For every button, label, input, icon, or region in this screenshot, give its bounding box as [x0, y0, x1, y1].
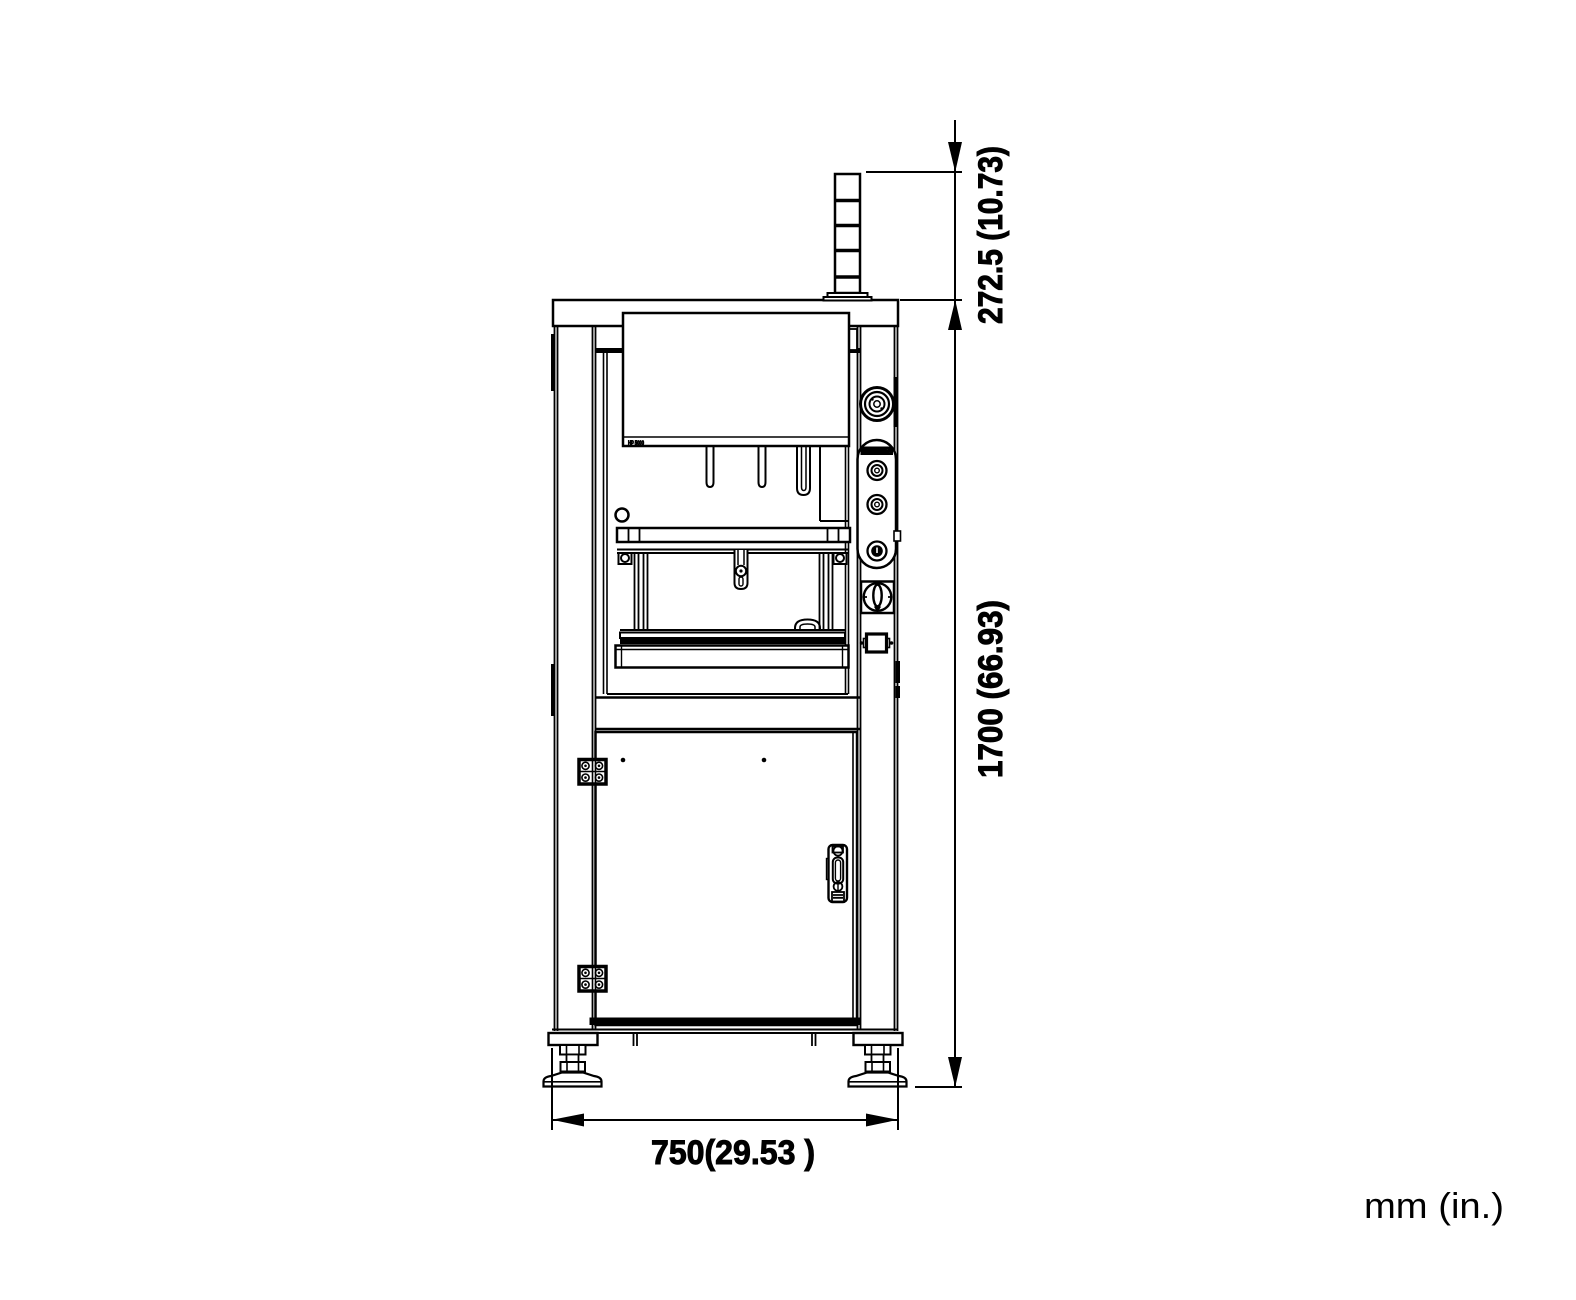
press-head-model-label: HP 5000 — [628, 441, 644, 447]
emergency-stop-button — [861, 388, 894, 421]
central-tool-rod — [735, 550, 748, 589]
main-power-switch — [861, 582, 894, 614]
right-wall-tab — [896, 686, 901, 698]
door-hole — [762, 758, 767, 763]
lower-cabinet — [579, 732, 861, 1025]
door-hole — [621, 758, 626, 763]
door-handle — [827, 845, 848, 902]
cabinet-door — [596, 732, 858, 1025]
caution-label-text: CAUTION — [863, 449, 891, 455]
dimension-total-height-label: 1700 (66.93) — [972, 600, 1010, 778]
push-button-3 — [868, 542, 887, 561]
dimension-width-label: 750(29.53 ) — [651, 1134, 815, 1172]
dimension-drawing-page: HP 5000 — [0, 0, 1576, 1300]
dimension-top-height-label: 272.5 (10.73) — [972, 146, 1010, 324]
door-hinge-top — [579, 759, 606, 785]
door-hinge-bottom — [579, 966, 606, 992]
machine-front-view-drawing: HP 5000 — [0, 0, 1576, 1300]
left-wall-tab — [551, 334, 555, 391]
units-note: mm (in.) — [1364, 1185, 1504, 1226]
upper-platen-bar — [617, 528, 850, 542]
door-sill — [590, 1018, 861, 1026]
control-button-panel: CAUTION — [858, 440, 897, 568]
left-wall-tab — [551, 664, 555, 716]
right-wall-tab — [896, 661, 901, 683]
